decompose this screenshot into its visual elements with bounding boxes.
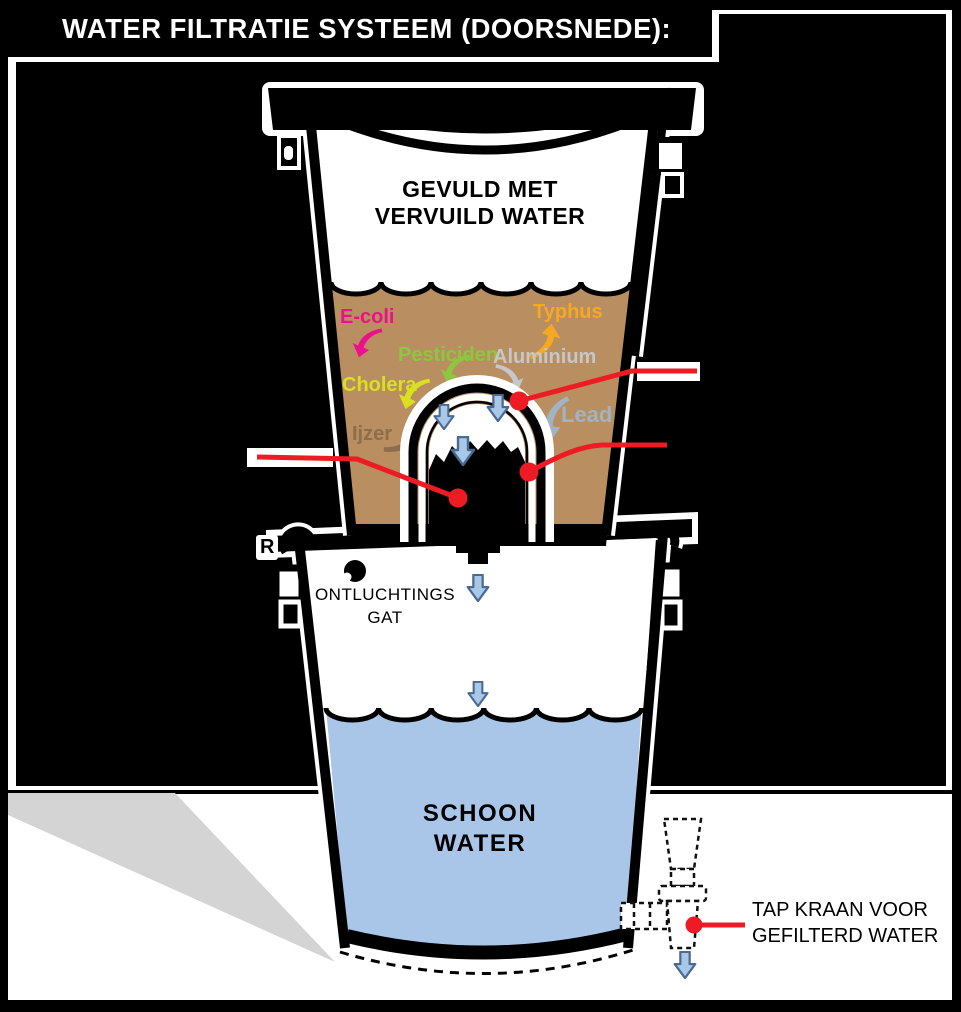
divider-line — [8, 790, 952, 794]
water-filter-diagram-page: { "title": "WATER FILTRATIE SYSTEEM (DOO… — [0, 0, 961, 1012]
black-backdrop-right — [719, 14, 946, 786]
page-title: WATER FILTRATIE SYSTEEM (DOORSNEDE): — [62, 13, 671, 45]
title-bar: WATER FILTRATIE SYSTEEM (DOORSNEDE): — [0, 0, 712, 57]
